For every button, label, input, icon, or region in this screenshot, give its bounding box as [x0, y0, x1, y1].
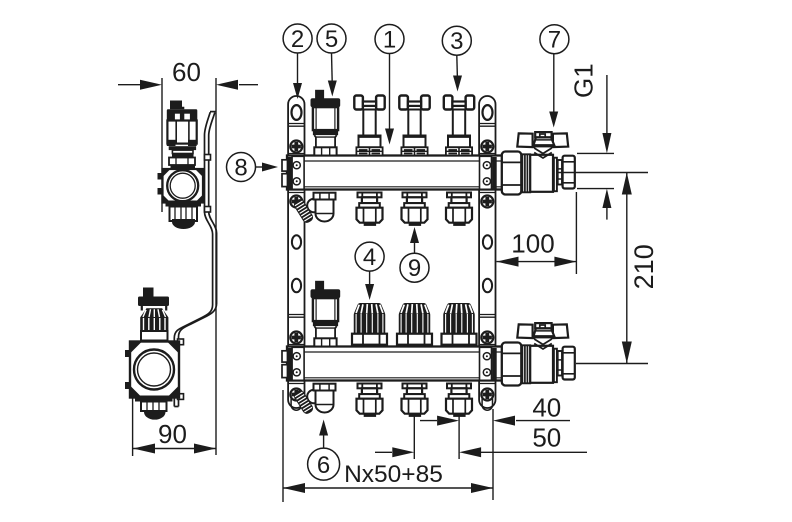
- svg-text:40: 40: [532, 393, 561, 423]
- svg-text:1: 1: [383, 27, 396, 54]
- svg-text:6: 6: [317, 452, 330, 479]
- svg-text:3: 3: [450, 28, 463, 55]
- svg-text:100: 100: [511, 229, 554, 259]
- svg-text:Nx50+85: Nx50+85: [344, 461, 443, 488]
- svg-text:90: 90: [158, 419, 187, 449]
- svg-text:210: 210: [629, 244, 659, 289]
- svg-text:4: 4: [363, 244, 376, 271]
- svg-text:60: 60: [172, 57, 201, 87]
- svg-text:9: 9: [408, 255, 421, 282]
- svg-text:7: 7: [548, 27, 561, 54]
- svg-text:8: 8: [234, 155, 247, 182]
- svg-text:G1: G1: [569, 63, 599, 98]
- svg-text:50: 50: [532, 423, 561, 453]
- svg-text:2: 2: [291, 26, 304, 53]
- svg-text:5: 5: [325, 26, 338, 53]
